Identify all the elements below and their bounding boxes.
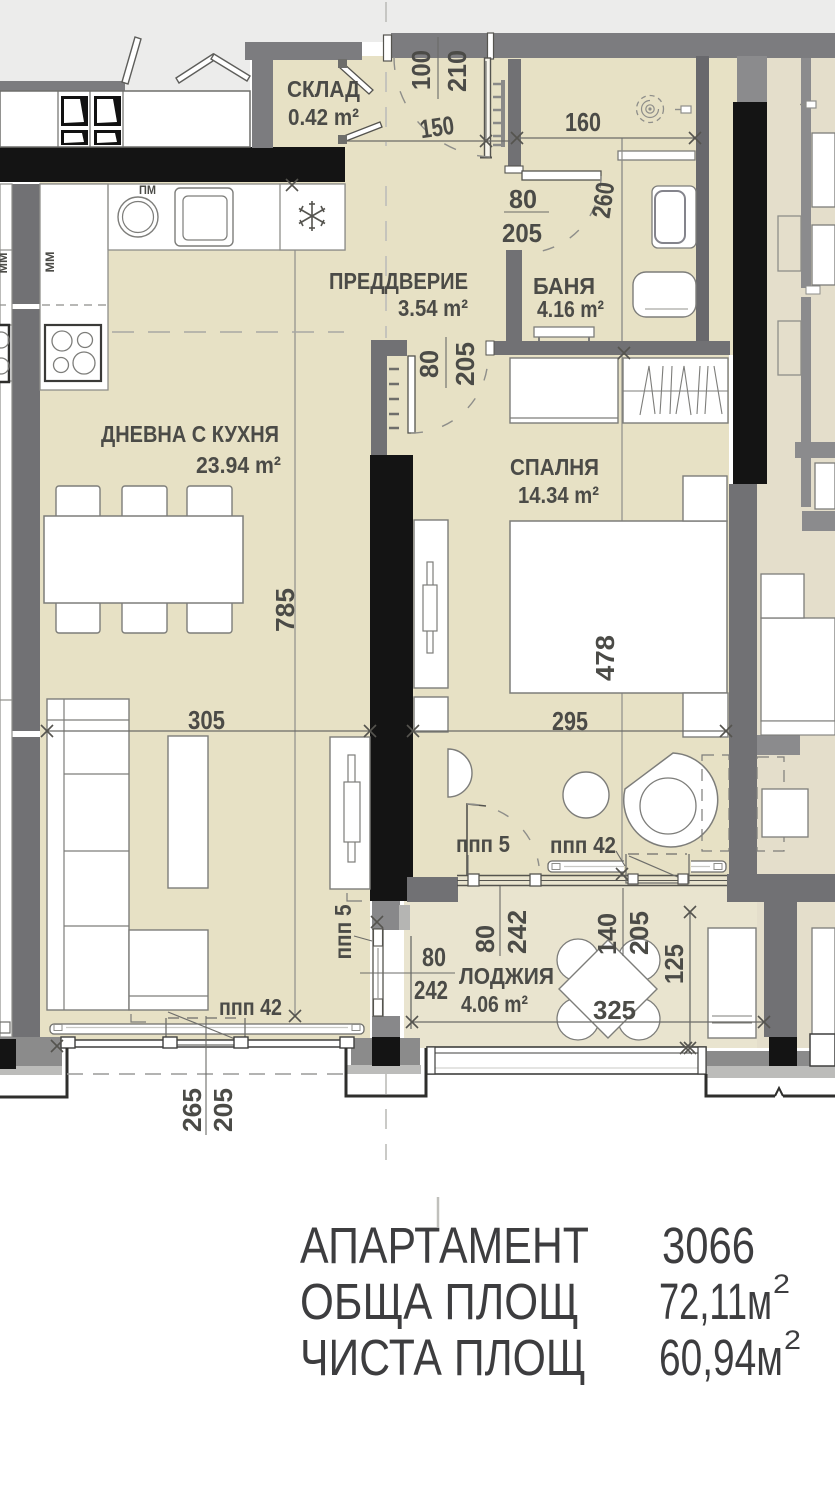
svg-text:140: 140 — [592, 913, 622, 955]
svg-text:210: 210 — [442, 50, 472, 92]
svg-text:ПМ: ПМ — [139, 185, 156, 197]
svg-text:ппп 5: ппп 5 — [330, 904, 356, 959]
svg-text:СКЛАД: СКЛАД — [287, 76, 360, 102]
svg-text:80: 80 — [422, 942, 446, 972]
svg-text:ппп 5: ппп 5 — [456, 831, 510, 857]
svg-text:ЧИСТА ПЛОЩ: ЧИСТА ПЛОЩ — [300, 1329, 586, 1386]
svg-text:72,11м: 72,11м — [659, 1273, 772, 1330]
svg-text:АПАРТАМЕНТ: АПАРТАМЕНТ — [300, 1217, 589, 1274]
svg-text:14.34 m²: 14.34 m² — [518, 482, 599, 508]
svg-text:242: 242 — [414, 975, 448, 1005]
svg-text:2: 2 — [773, 1269, 790, 1299]
svg-text:205: 205 — [502, 218, 542, 248]
svg-text:785: 785 — [270, 588, 300, 632]
svg-text:150: 150 — [418, 110, 456, 144]
svg-text:ЛОДЖИЯ: ЛОДЖИЯ — [459, 963, 554, 989]
svg-text:242: 242 — [502, 910, 532, 954]
svg-text:80: 80 — [509, 184, 537, 214]
svg-text:60,94м: 60,94м — [659, 1329, 783, 1386]
svg-text:3066: 3066 — [662, 1217, 755, 1274]
svg-text:80: 80 — [414, 350, 444, 378]
svg-text:325: 325 — [593, 995, 636, 1025]
svg-text:ММ: ММ — [0, 253, 10, 274]
svg-text:205: 205 — [208, 1088, 238, 1132]
svg-text:160: 160 — [565, 107, 601, 137]
svg-text:ОБЩА ПЛОЩ: ОБЩА ПЛОЩ — [300, 1273, 579, 1330]
svg-text:205: 205 — [624, 911, 654, 955]
svg-text:0.42 m²: 0.42 m² — [288, 104, 359, 130]
svg-text:205: 205 — [450, 342, 480, 386]
svg-text:СПАЛНЯ: СПАЛНЯ — [510, 454, 599, 480]
svg-text:305: 305 — [188, 705, 225, 735]
svg-text:2: 2 — [784, 1325, 801, 1355]
svg-text:4.16 m²: 4.16 m² — [537, 296, 604, 322]
svg-text:80: 80 — [470, 925, 500, 953]
svg-text:100: 100 — [406, 50, 436, 90]
svg-text:ДНЕВНА С КУХНЯ: ДНЕВНА С КУХНЯ — [101, 421, 279, 447]
svg-text:295: 295 — [552, 706, 588, 736]
svg-text:125: 125 — [659, 944, 689, 984]
svg-text:260: 260 — [586, 180, 621, 220]
svg-text:478: 478 — [590, 635, 620, 681]
svg-text:ПРЕДДВЕРИЕ: ПРЕДДВЕРИЕ — [329, 268, 468, 294]
svg-text:23.94 m²: 23.94 m² — [196, 452, 281, 478]
svg-text:ппп 42: ппп 42 — [550, 832, 616, 858]
svg-text:265: 265 — [177, 1088, 207, 1132]
svg-text:3.54 m²: 3.54 m² — [398, 295, 468, 321]
svg-text:4.06 m²: 4.06 m² — [461, 991, 528, 1017]
svg-text:ММ: ММ — [45, 252, 57, 273]
svg-text:ппп 42: ппп 42 — [219, 994, 282, 1020]
